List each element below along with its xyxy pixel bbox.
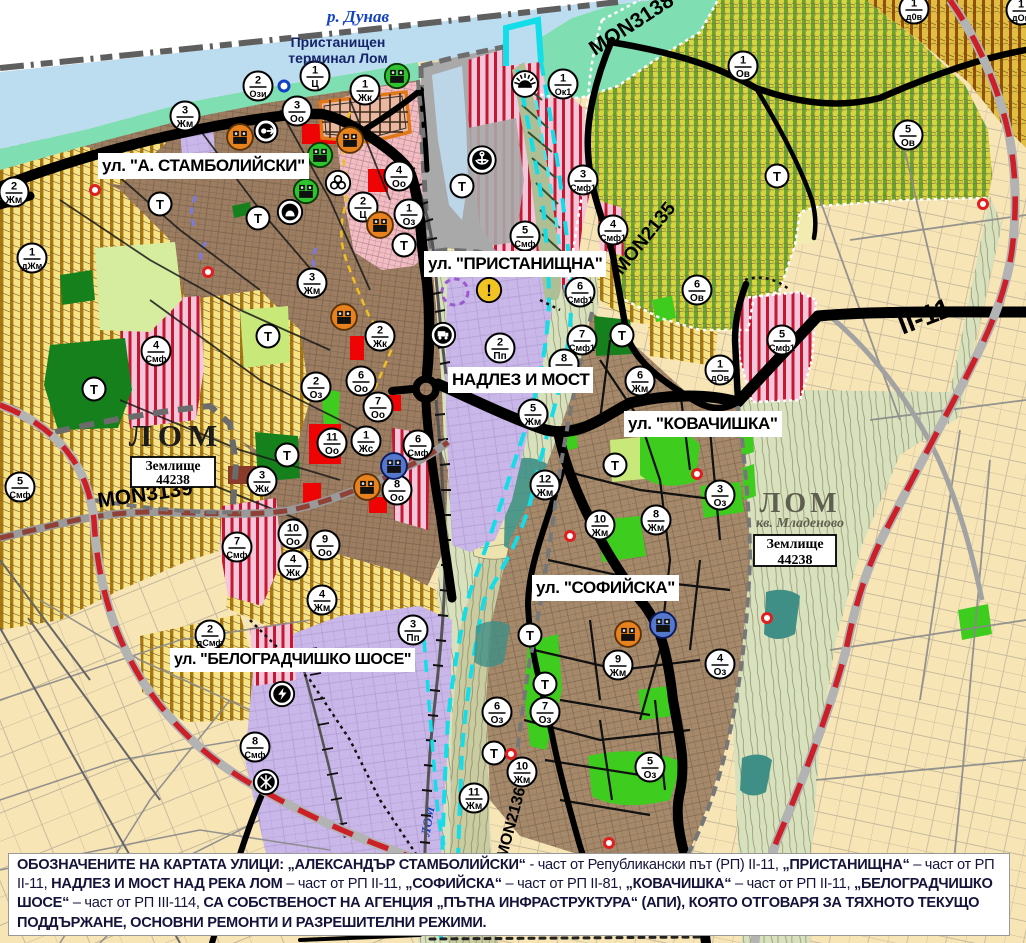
- svg-text:3: 3: [309, 272, 315, 284]
- svg-text:Ов: Ов: [736, 69, 750, 80]
- svg-text:Жк: Жк: [254, 484, 270, 495]
- svg-text:1: 1: [1018, 0, 1024, 11]
- svg-text:Ок1: Ок1: [555, 87, 572, 97]
- svg-text:Землище: Землище: [766, 537, 823, 552]
- svg-text:Т: Т: [773, 169, 781, 184]
- svg-text:Оз: Оз: [403, 217, 416, 228]
- svg-text:7: 7: [234, 536, 240, 548]
- svg-text:Оз: Оз: [539, 715, 552, 726]
- svg-text:Т: Т: [541, 677, 549, 692]
- svg-text:Ц: Ц: [359, 210, 367, 221]
- svg-text:Пп: Пп: [406, 633, 419, 644]
- svg-text:3: 3: [580, 169, 586, 181]
- svg-text:ЛОМ: ЛОМ: [129, 418, 223, 453]
- svg-text:Т: Т: [611, 458, 619, 473]
- svg-text:2: 2: [11, 181, 17, 193]
- svg-text:Жм: Жм: [303, 286, 320, 297]
- svg-text:5: 5: [522, 225, 528, 237]
- svg-text:Смф: Смф: [515, 239, 536, 249]
- svg-text:Оз: Оз: [491, 715, 504, 726]
- svg-text:Оз: Оз: [644, 770, 657, 781]
- svg-text:Жм: Жм: [631, 384, 648, 395]
- svg-text:Смф: Смф: [245, 750, 266, 760]
- svg-text:Жм: Жм: [591, 528, 608, 539]
- svg-text:2: 2: [377, 325, 383, 337]
- svg-text:Т: Т: [156, 197, 164, 212]
- svg-text:6: 6: [358, 370, 364, 382]
- svg-text:Т: Т: [254, 211, 262, 226]
- svg-text:9: 9: [322, 534, 328, 546]
- svg-text:Жк: Жк: [357, 93, 373, 104]
- svg-text:Смф1: Смф1: [567, 295, 593, 305]
- svg-text:дОв: дОв: [1012, 13, 1026, 23]
- svg-text:7: 7: [375, 396, 381, 408]
- svg-text:3: 3: [182, 105, 188, 117]
- svg-text:1: 1: [29, 247, 35, 259]
- svg-text:Смф1: Смф1: [570, 183, 596, 193]
- svg-text:Оз: Оз: [714, 498, 727, 509]
- svg-text:1: 1: [362, 79, 368, 91]
- svg-text:1: 1: [363, 430, 369, 442]
- svg-text:Оо: Оо: [286, 537, 300, 548]
- svg-text:Жм: Жм: [513, 775, 530, 786]
- svg-text:Оо: Оо: [354, 384, 368, 395]
- svg-text:1: 1: [717, 359, 723, 371]
- svg-text:Оо: Оо: [318, 548, 332, 559]
- svg-text:дСмф: дСмф: [197, 638, 224, 648]
- svg-text:4: 4: [717, 653, 724, 665]
- svg-text:2: 2: [313, 376, 319, 388]
- svg-text:6: 6: [415, 434, 421, 446]
- svg-text:Жс: Жс: [358, 444, 374, 455]
- svg-text:5: 5: [779, 329, 785, 341]
- svg-text:ЛОМ: ЛОМ: [759, 488, 840, 519]
- svg-text:дЖм: дЖм: [22, 261, 43, 271]
- svg-text:!: !: [486, 281, 492, 300]
- svg-text:Жм: Жм: [609, 668, 626, 679]
- svg-text:10: 10: [594, 514, 606, 526]
- svg-text:9: 9: [615, 654, 621, 666]
- svg-text:Оо: Оо: [290, 114, 304, 125]
- svg-text:д0в: д0в: [906, 12, 923, 22]
- svg-text:Т: Т: [458, 179, 466, 194]
- svg-text:Т: Т: [283, 448, 291, 463]
- svg-text:дОв: дОв: [711, 373, 730, 383]
- svg-text:Пп: Пп: [493, 351, 506, 362]
- svg-text:3: 3: [717, 484, 723, 496]
- svg-text:4: 4: [319, 589, 326, 601]
- svg-text:терминал Лом: терминал Лом: [288, 50, 388, 66]
- svg-text:12: 12: [539, 474, 551, 486]
- svg-text:Оо: Оо: [390, 493, 404, 504]
- svg-text:8: 8: [653, 509, 659, 521]
- svg-text:2: 2: [255, 75, 261, 87]
- svg-text:Т: Т: [264, 329, 272, 344]
- svg-text:Жк: Жк: [285, 568, 301, 579]
- svg-text:Ов: Ов: [901, 138, 915, 149]
- svg-text:11: 11: [468, 787, 480, 799]
- svg-text:Т: Т: [400, 238, 408, 253]
- svg-text:Жм: Жм: [524, 417, 541, 428]
- svg-text:6: 6: [577, 281, 583, 293]
- svg-text:44238: 44238: [778, 553, 813, 568]
- svg-text:Жк: Жк: [372, 339, 388, 350]
- svg-text:Жм: Жм: [465, 801, 482, 812]
- svg-text:Оз: Оз: [714, 667, 727, 678]
- svg-text:2: 2: [360, 196, 366, 208]
- svg-text:7: 7: [579, 329, 585, 341]
- svg-text:Жм: Жм: [313, 603, 330, 614]
- svg-text:Т: Т: [90, 382, 98, 397]
- svg-text:7: 7: [542, 701, 548, 713]
- svg-text:Т: Т: [618, 328, 626, 343]
- svg-text:6: 6: [637, 370, 643, 382]
- svg-text:Смф: Смф: [408, 448, 429, 458]
- svg-text:4: 4: [396, 165, 403, 177]
- svg-text:10: 10: [516, 761, 528, 773]
- svg-text:Смф1: Смф1: [600, 233, 626, 243]
- svg-text:3: 3: [294, 100, 300, 112]
- svg-text:Смф: Смф: [146, 354, 167, 364]
- svg-text:4: 4: [153, 340, 160, 352]
- svg-text:1: 1: [406, 203, 412, 215]
- svg-text:Землище: Землище: [145, 458, 200, 473]
- svg-text:8: 8: [394, 479, 400, 491]
- svg-text:Жм: Жм: [5, 195, 22, 206]
- svg-text:Оо: Оо: [392, 179, 406, 190]
- svg-text:4: 4: [610, 219, 617, 231]
- svg-text:5: 5: [17, 476, 23, 488]
- svg-text:Жм: Жм: [176, 119, 193, 130]
- svg-text:Ц: Ц: [311, 79, 319, 90]
- svg-text:44238: 44238: [156, 472, 190, 487]
- svg-text:5: 5: [530, 403, 536, 415]
- svg-text:3: 3: [410, 619, 416, 631]
- svg-text:6: 6: [494, 701, 500, 713]
- svg-text:Оо: Оо: [371, 410, 385, 421]
- svg-text:Ози: Ози: [249, 89, 266, 99]
- svg-text:1: 1: [911, 0, 917, 10]
- svg-text:2: 2: [497, 337, 503, 349]
- svg-text:2: 2: [207, 624, 213, 636]
- svg-text:1: 1: [740, 55, 746, 67]
- svg-text:11: 11: [326, 432, 338, 444]
- svg-text:4: 4: [290, 554, 297, 566]
- svg-text:Ов: Ов: [690, 293, 704, 304]
- svg-text:Жм: Жм: [647, 523, 664, 534]
- svg-text:6: 6: [694, 279, 700, 291]
- svg-text:8: 8: [252, 736, 258, 748]
- svg-text:Смф: Смф: [227, 550, 248, 560]
- svg-text:Жм: Жм: [536, 488, 553, 499]
- svg-text:1: 1: [312, 65, 318, 77]
- svg-text:Смф: Смф: [10, 490, 31, 500]
- svg-text:кв. Младеново: кв. Младеново: [756, 516, 844, 531]
- svg-text:Оз: Оз: [310, 390, 323, 401]
- svg-text:8: 8: [561, 353, 567, 365]
- svg-text:3: 3: [259, 470, 265, 482]
- svg-text:5: 5: [905, 124, 911, 136]
- svg-text:Т: Т: [490, 746, 498, 761]
- svg-text:Т: Т: [526, 628, 534, 643]
- svg-text:Пристанищен: Пристанищен: [291, 34, 386, 50]
- svg-text:р. Дунав: р. Дунав: [325, 7, 390, 26]
- svg-text:Оо: Оо: [325, 446, 339, 457]
- svg-text:1: 1: [560, 73, 566, 85]
- svg-text:10: 10: [287, 523, 299, 535]
- svg-text:5: 5: [647, 756, 653, 768]
- svg-text:Смф1: Смф1: [769, 343, 795, 353]
